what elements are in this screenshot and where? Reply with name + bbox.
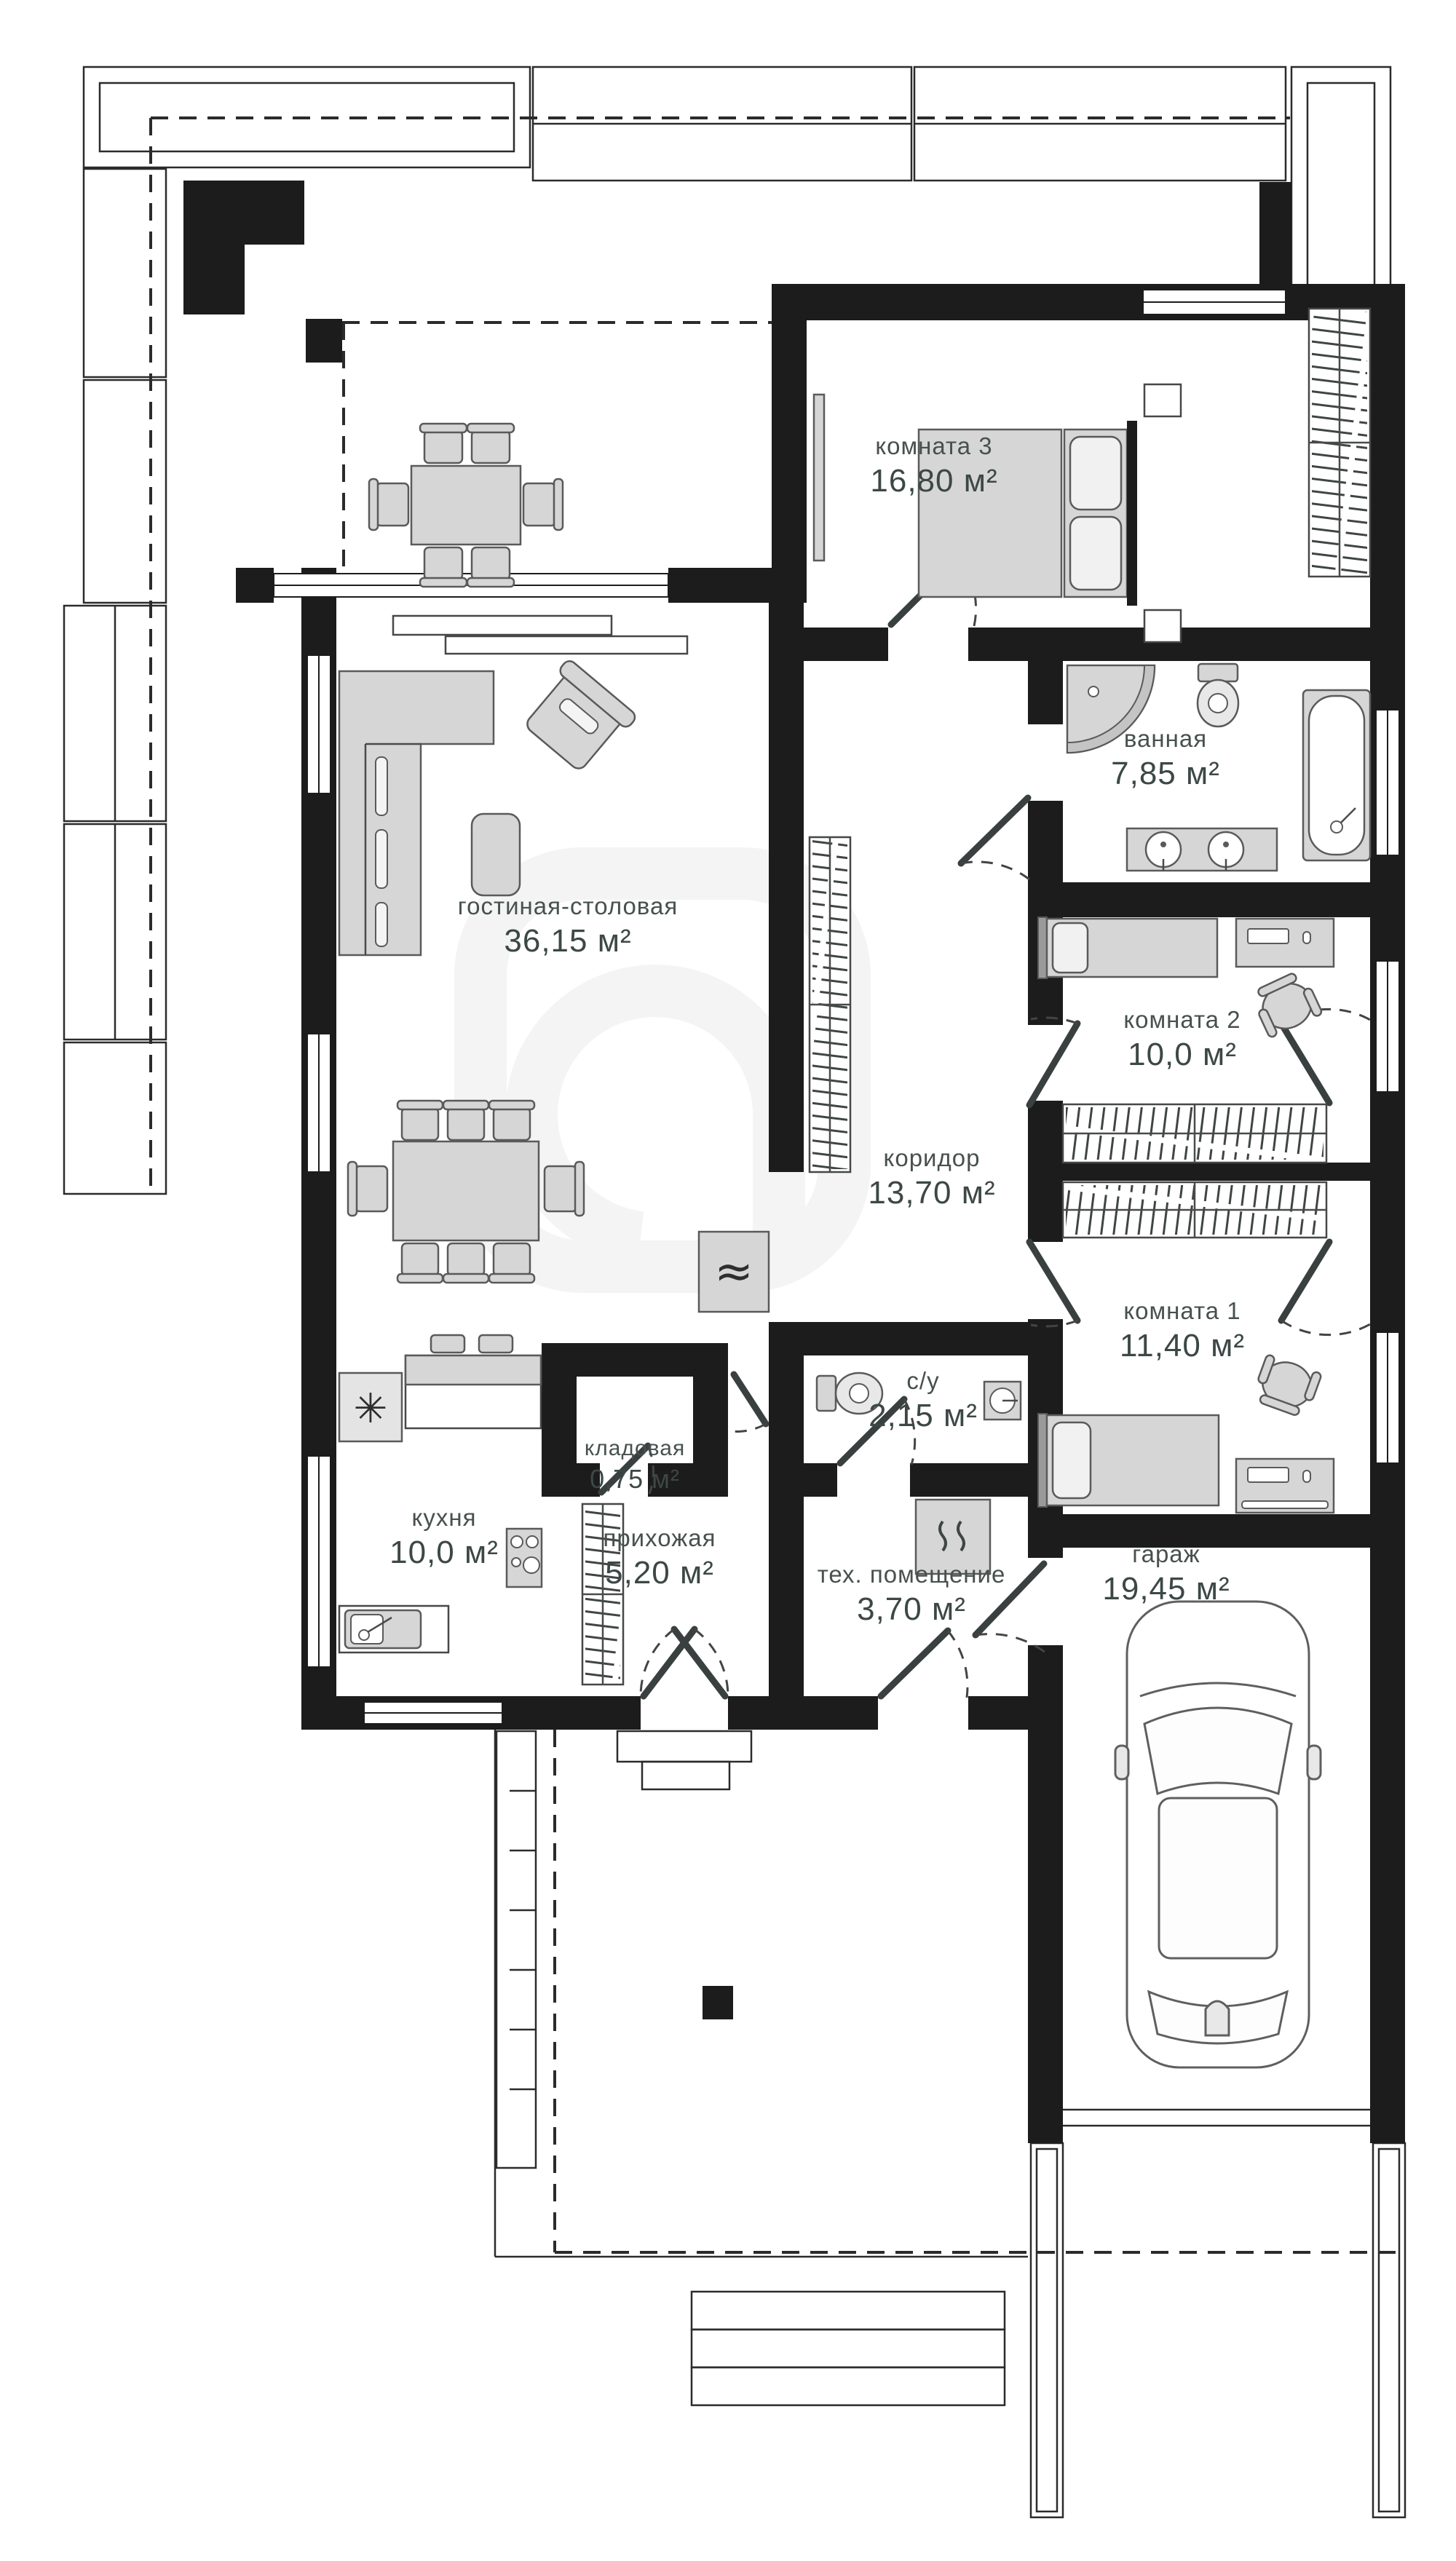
room3-furniture	[814, 384, 1181, 642]
tv-console	[393, 616, 687, 654]
bath-vanity	[1127, 828, 1277, 871]
window-living-west-1	[307, 655, 331, 793]
desk-chair	[1249, 969, 1323, 1038]
floor-plan: ≈ ✳	[0, 0, 1456, 2561]
car	[1115, 1602, 1321, 2067]
wc-toilet-tank	[817, 1376, 836, 1411]
room-label-hall: прихожая 5,20 м²	[603, 1523, 716, 1593]
door-entrance	[641, 1629, 728, 1696]
room-label-room3: комната 3 16,80 м²	[870, 431, 997, 501]
window-room3-north	[1143, 290, 1286, 314]
room-label-kitchen: кухня 10,0 м²	[389, 1503, 499, 1572]
room-label-garage: гараж 19,45 м²	[1102, 1539, 1230, 1609]
desk-chair	[1251, 1354, 1322, 1419]
wardrobe-room3	[1309, 309, 1370, 577]
wardrobe-corridor	[810, 837, 850, 1172]
window-bench	[814, 395, 824, 561]
terrace-dining-set	[369, 424, 563, 587]
nightstand	[1144, 384, 1181, 416]
room-label-wc: с/у 2,15 м²	[869, 1366, 978, 1436]
window-bath-east	[1376, 710, 1399, 855]
window-room1-east	[1376, 1332, 1399, 1463]
window-kitchen-south	[364, 1702, 502, 1724]
room-label-corridor: коридор 13,70 м²	[868, 1143, 995, 1213]
bath-toilet	[1198, 664, 1238, 727]
door-bath	[961, 798, 1029, 879]
fridge-icon: ✳	[354, 1385, 388, 1433]
room-label-pantry: кладовая 0,75 м²	[585, 1435, 685, 1495]
window-living-west-2	[307, 1034, 331, 1172]
room-label-living: гостиная-столовая 36,15 м²	[458, 891, 678, 961]
armchair	[517, 658, 638, 777]
stool	[479, 1335, 513, 1353]
stove	[507, 1529, 542, 1587]
coffee-table	[472, 814, 520, 895]
wardrobe-room2-row	[1063, 1104, 1326, 1163]
wc-sink	[984, 1382, 1021, 1420]
kitchen-sink	[339, 1606, 448, 1652]
nightstand	[1144, 610, 1181, 642]
bathtub	[1303, 690, 1370, 860]
door-tech	[881, 1631, 968, 1698]
door-hall-inner	[731, 1374, 766, 1431]
room-label-room2: комната 2 10,0 м²	[1123, 1005, 1241, 1074]
room1-furniture	[1038, 1354, 1334, 1513]
vent-icon: ≈	[714, 1245, 753, 1299]
stool	[431, 1335, 464, 1353]
vent-unit: ≈	[699, 1232, 769, 1312]
room-label-tech: тех. помещение 3,70 м²	[813, 1559, 1010, 1629]
room-label-room1: комната 1 11,40 м²	[1120, 1296, 1245, 1366]
room-label-bath: ванная 7,85 м²	[1111, 724, 1220, 793]
window-kitchen-west	[307, 1456, 331, 1667]
kitchen-furniture: ✳	[339, 1335, 542, 1652]
door-room1-right	[1281, 1242, 1372, 1335]
wardrobe-room1-row	[1063, 1182, 1326, 1238]
window-room2-east	[1376, 961, 1399, 1092]
plan-drawing: ≈ ✳	[0, 0, 1456, 2561]
